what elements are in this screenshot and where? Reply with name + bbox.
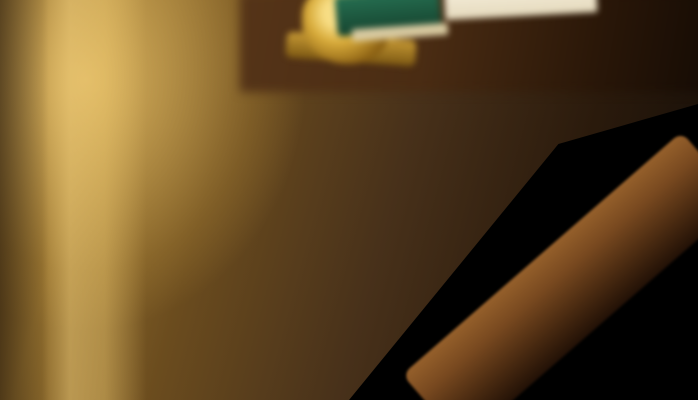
photo-desk-with-maps — [0, 0, 698, 400]
background-objects-layer — [0, 0, 698, 400]
thick-book — [444, 0, 600, 66]
